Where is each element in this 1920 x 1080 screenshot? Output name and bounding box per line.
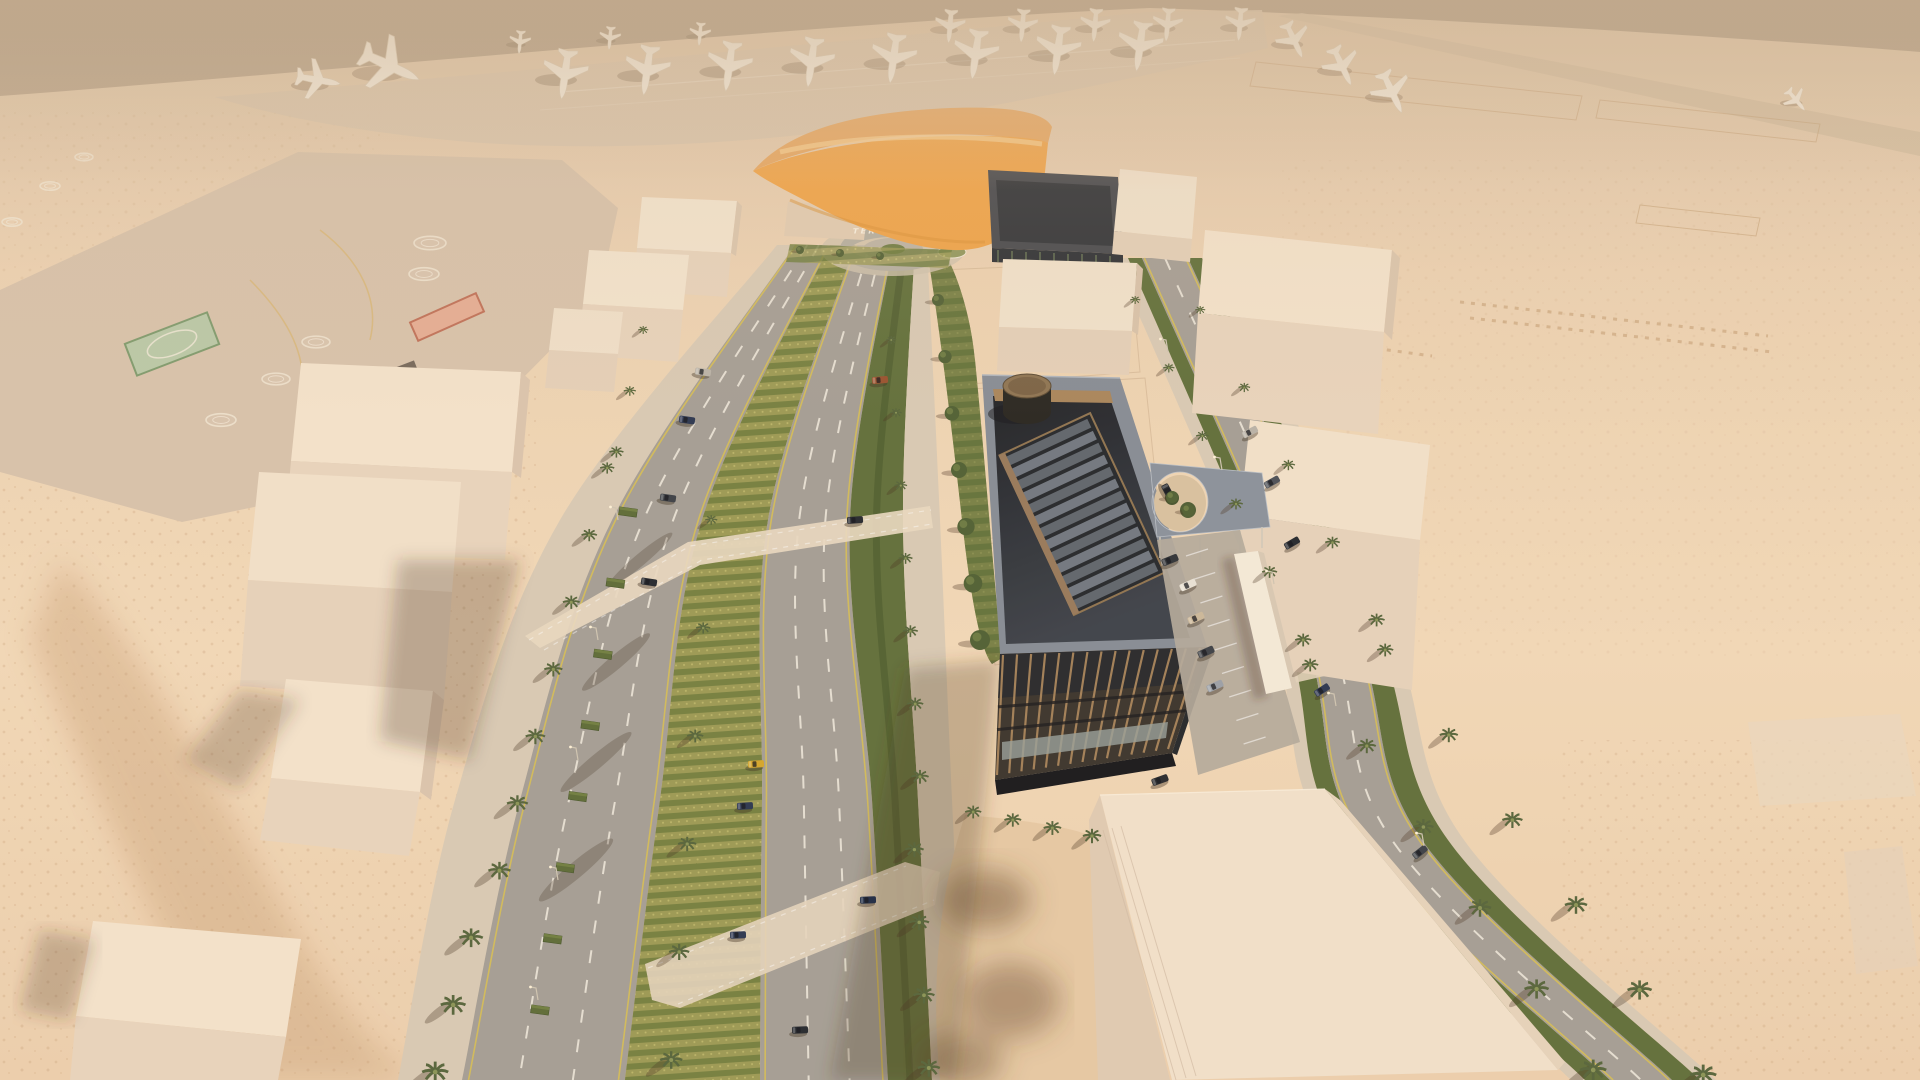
scene-svg: VIP VIP TERMINAL <box>0 0 1920 1080</box>
render-viewport: VIP VIP TERMINAL <box>0 0 1920 1080</box>
warm-cast <box>0 0 1920 1080</box>
